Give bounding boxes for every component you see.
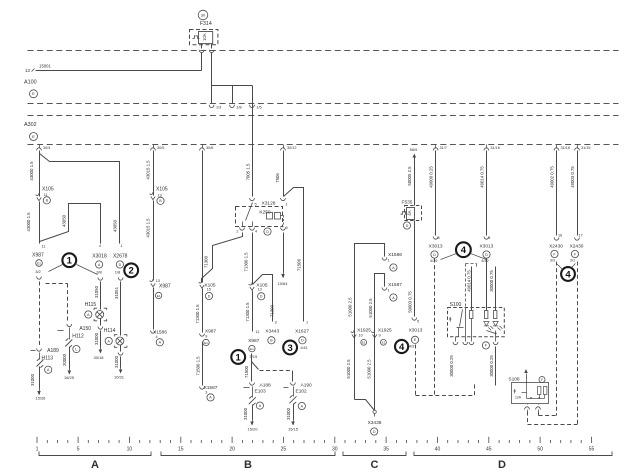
svg-text:4/39: 4/39 bbox=[430, 259, 437, 263]
svg-text:50005 2.5: 50005 2.5 bbox=[407, 166, 412, 186]
svg-text:E: E bbox=[32, 134, 35, 139]
svg-text:F314: F314 bbox=[200, 21, 212, 27]
svg-text:2: 2 bbox=[236, 230, 238, 234]
svg-text:X2430: X2430 bbox=[570, 243, 584, 249]
svg-text:4: 4 bbox=[399, 342, 405, 353]
svg-text:7506: 7506 bbox=[275, 173, 280, 183]
svg-text:31/15: 31/15 bbox=[581, 146, 591, 150]
svg-text:E1: E1 bbox=[250, 347, 254, 351]
svg-text:51000 2.5: 51000 2.5 bbox=[368, 298, 373, 318]
svg-text:71300: 71300 bbox=[270, 304, 275, 317]
svg-text:A188: A188 bbox=[260, 383, 272, 389]
svg-text:11: 11 bbox=[42, 245, 46, 249]
svg-text:50: 50 bbox=[537, 447, 543, 453]
svg-text:D: D bbox=[119, 263, 122, 267]
svg-text:1: 1 bbox=[388, 289, 390, 293]
svg-text:1: 1 bbox=[286, 202, 288, 206]
svg-text:X3438: X3438 bbox=[368, 420, 382, 426]
svg-text:4: 4 bbox=[99, 244, 101, 248]
svg-text:11: 11 bbox=[256, 330, 260, 334]
svg-text:71506: 71506 bbox=[297, 258, 302, 271]
svg-text:15001: 15001 bbox=[39, 63, 51, 68]
svg-text:13: 13 bbox=[156, 279, 160, 283]
svg-text:25: 25 bbox=[281, 447, 287, 453]
svg-text:30000 0.25: 30000 0.25 bbox=[449, 355, 454, 377]
svg-text:10: 10 bbox=[127, 447, 133, 453]
svg-text:X3443: X3443 bbox=[265, 328, 279, 334]
svg-text:1/3: 1/3 bbox=[216, 106, 221, 110]
svg-text:31000: 31000 bbox=[94, 332, 99, 345]
svg-text:49002 0.75: 49002 0.75 bbox=[550, 166, 555, 188]
svg-text:50003 0.75: 50003 0.75 bbox=[407, 291, 412, 313]
svg-text:C: C bbox=[371, 459, 379, 471]
svg-text:30000 0.75: 30000 0.75 bbox=[489, 270, 494, 292]
svg-text:71500: 71500 bbox=[244, 365, 249, 378]
svg-text:49003 0.75: 49003 0.75 bbox=[570, 166, 575, 188]
svg-text:51000 2.5: 51000 2.5 bbox=[348, 297, 353, 317]
svg-text:71300 1.5: 71300 1.5 bbox=[195, 304, 200, 324]
svg-text:1: 1 bbox=[36, 447, 39, 453]
svg-text:3/15: 3/15 bbox=[249, 354, 258, 359]
svg-text:4: 4 bbox=[156, 335, 158, 339]
svg-text:16: 16 bbox=[558, 234, 562, 238]
svg-text:E1: E1 bbox=[37, 261, 41, 265]
svg-text:3: 3 bbox=[275, 320, 277, 324]
svg-text:A302: A302 bbox=[24, 122, 37, 128]
svg-text:43015 1.5: 43015 1.5 bbox=[146, 218, 151, 238]
svg-text:3: 3 bbox=[205, 390, 207, 394]
svg-text:31000: 31000 bbox=[243, 407, 248, 420]
svg-text:X105: X105 bbox=[42, 186, 54, 192]
svg-text:43050: 43050 bbox=[62, 214, 67, 227]
svg-text:49014 0.75: 49014 0.75 bbox=[467, 270, 472, 292]
svg-text:31000: 31000 bbox=[30, 373, 35, 386]
svg-text:E102: E102 bbox=[296, 389, 308, 395]
svg-text:H115: H115 bbox=[85, 302, 97, 308]
svg-text:15/20: 15/20 bbox=[247, 427, 258, 432]
svg-text:E1: E1 bbox=[382, 341, 386, 345]
svg-text:3/1: 3/1 bbox=[570, 259, 575, 263]
svg-text:X105: X105 bbox=[156, 186, 168, 192]
svg-text:D: D bbox=[260, 295, 263, 299]
svg-text:15/26: 15/26 bbox=[35, 396, 46, 401]
svg-text:31/7: 31/7 bbox=[440, 146, 447, 150]
svg-text:D: D bbox=[433, 253, 436, 257]
svg-text:43000 1.5: 43000 1.5 bbox=[26, 212, 31, 232]
svg-text:43015 1.5: 43015 1.5 bbox=[146, 160, 151, 180]
svg-text:49014 0.75: 49014 0.75 bbox=[479, 166, 484, 188]
svg-text:1/8: 1/8 bbox=[236, 106, 241, 110]
svg-text:B: B bbox=[244, 459, 252, 471]
svg-text:A190: A190 bbox=[301, 383, 313, 389]
svg-text:E103: E103 bbox=[255, 389, 267, 395]
svg-text:X3128: X3128 bbox=[262, 200, 276, 206]
svg-text:A100: A100 bbox=[24, 80, 37, 86]
svg-text:9: 9 bbox=[379, 334, 381, 338]
svg-text:S100: S100 bbox=[450, 302, 462, 308]
svg-text:17: 17 bbox=[579, 234, 583, 238]
svg-text:30/6: 30/6 bbox=[206, 146, 213, 150]
svg-text:9: 9 bbox=[205, 334, 207, 338]
svg-text:10/64: 10/64 bbox=[277, 281, 288, 286]
svg-text:4: 4 bbox=[255, 230, 257, 234]
svg-text:3/3: 3/3 bbox=[550, 259, 555, 263]
svg-text:E1: E1 bbox=[157, 294, 161, 298]
svg-text:E1: E1 bbox=[362, 341, 366, 345]
svg-text:E: E bbox=[32, 91, 35, 96]
svg-text:3/2: 3/2 bbox=[35, 269, 41, 274]
svg-text:F535: F535 bbox=[402, 200, 413, 206]
svg-text:11: 11 bbox=[44, 193, 48, 197]
svg-text:F: F bbox=[541, 378, 543, 382]
svg-text:71300 1.5: 71300 1.5 bbox=[244, 252, 249, 272]
svg-text:5: 5 bbox=[255, 202, 257, 206]
svg-text:X1587: X1587 bbox=[388, 282, 402, 288]
svg-text:1/8: 1/8 bbox=[115, 270, 121, 275]
svg-text:X1925: X1925 bbox=[357, 327, 371, 333]
svg-text:35: 35 bbox=[383, 447, 389, 453]
svg-text:15: 15 bbox=[178, 447, 184, 453]
svg-text:31000: 31000 bbox=[286, 407, 291, 420]
svg-text:D: D bbox=[498, 459, 506, 471]
svg-text:1: 1 bbox=[306, 320, 308, 324]
svg-text:4/42: 4/42 bbox=[481, 259, 488, 263]
svg-text:40: 40 bbox=[435, 447, 441, 453]
svg-text:55: 55 bbox=[589, 447, 595, 453]
svg-text:31/16: 31/16 bbox=[490, 146, 500, 150]
svg-text:5: 5 bbox=[77, 447, 80, 453]
svg-text:D: D bbox=[485, 253, 488, 257]
svg-text:20000: 20000 bbox=[62, 353, 67, 366]
svg-text:X1925: X1925 bbox=[378, 327, 392, 333]
svg-text:4: 4 bbox=[565, 269, 571, 280]
svg-text:X987: X987 bbox=[32, 253, 44, 259]
svg-text:30000 0.25: 30000 0.25 bbox=[489, 355, 494, 377]
svg-text:15: 15 bbox=[207, 288, 211, 292]
svg-text:16/25: 16/25 bbox=[64, 375, 75, 380]
svg-text:13: 13 bbox=[25, 68, 30, 73]
svg-text:7005 1.5: 7005 1.5 bbox=[245, 163, 250, 180]
svg-text:X2678: X2678 bbox=[113, 254, 128, 260]
svg-text:43000 1.5: 43000 1.5 bbox=[29, 161, 34, 181]
svg-text:10A: 10A bbox=[202, 33, 207, 41]
svg-text:X3013: X3013 bbox=[409, 328, 423, 334]
svg-text:1/5: 1/5 bbox=[256, 106, 261, 110]
svg-text:A: A bbox=[91, 459, 99, 471]
svg-text:10: 10 bbox=[359, 334, 363, 338]
svg-text:30/5: 30/5 bbox=[157, 146, 164, 150]
svg-text:30: 30 bbox=[201, 14, 205, 18]
svg-text:X987: X987 bbox=[159, 283, 171, 289]
svg-text:31051: 31051 bbox=[114, 286, 119, 299]
svg-text:71300: 71300 bbox=[204, 255, 209, 268]
svg-text:X1627: X1627 bbox=[295, 328, 309, 334]
svg-text:H114: H114 bbox=[104, 328, 116, 334]
svg-text:31050: 31050 bbox=[94, 285, 99, 298]
svg-text:X2430: X2430 bbox=[549, 243, 563, 249]
svg-text:D: D bbox=[208, 294, 211, 298]
svg-text:X1586: X1586 bbox=[388, 252, 402, 258]
svg-text:9: 9 bbox=[286, 226, 288, 230]
svg-text:X3013: X3013 bbox=[429, 243, 443, 249]
svg-text:30/12: 30/12 bbox=[287, 146, 297, 150]
svg-text:56/9: 56/9 bbox=[410, 147, 419, 152]
svg-text:A189: A189 bbox=[47, 348, 59, 354]
svg-text:3: 3 bbox=[287, 343, 292, 354]
svg-text:L: L bbox=[75, 347, 77, 351]
svg-text:3/8: 3/8 bbox=[96, 270, 102, 275]
svg-text:10/31: 10/31 bbox=[114, 375, 125, 380]
svg-text:4: 4 bbox=[461, 245, 467, 256]
svg-text:30/18: 30/18 bbox=[93, 355, 104, 360]
svg-text:13: 13 bbox=[158, 193, 162, 197]
svg-text:H113: H113 bbox=[42, 356, 54, 362]
svg-text:X3018: X3018 bbox=[92, 254, 107, 260]
svg-text:A150: A150 bbox=[79, 326, 91, 332]
svg-text:5: 5 bbox=[417, 320, 419, 324]
svg-text:S108: S108 bbox=[508, 377, 520, 383]
svg-text:30/4: 30/4 bbox=[43, 146, 50, 150]
svg-text:1/43: 1/43 bbox=[300, 346, 307, 350]
svg-text:43050: 43050 bbox=[113, 219, 118, 232]
svg-text:1: 1 bbox=[67, 256, 73, 267]
svg-text:12A: 12A bbox=[515, 396, 522, 400]
svg-text:1: 1 bbox=[236, 352, 242, 363]
svg-text:71300 1.5: 71300 1.5 bbox=[245, 302, 250, 322]
svg-text:4A: 4A bbox=[407, 210, 412, 215]
svg-text:H112: H112 bbox=[72, 333, 84, 339]
svg-text:51000 2.5: 51000 2.5 bbox=[366, 359, 371, 379]
svg-text:D: D bbox=[373, 430, 376, 434]
svg-text:E1: E1 bbox=[204, 341, 208, 345]
svg-text:X3013: X3013 bbox=[479, 243, 493, 249]
svg-text:1: 1 bbox=[120, 244, 122, 248]
svg-text:1: 1 bbox=[388, 259, 390, 263]
svg-text:2: 2 bbox=[129, 266, 134, 277]
svg-text:D: D bbox=[266, 230, 269, 234]
svg-text:20: 20 bbox=[229, 447, 235, 453]
svg-text:D: D bbox=[301, 339, 304, 343]
svg-text:45: 45 bbox=[486, 447, 492, 453]
svg-text:13: 13 bbox=[258, 288, 262, 292]
svg-text:15/15: 15/15 bbox=[288, 427, 299, 432]
svg-text:49000 0.25: 49000 0.25 bbox=[429, 166, 434, 188]
svg-text:71500 1.5: 71500 1.5 bbox=[195, 356, 200, 376]
svg-text:31/16: 31/16 bbox=[561, 146, 571, 150]
svg-text:31000: 31000 bbox=[114, 355, 119, 368]
svg-text:51000 2.5: 51000 2.5 bbox=[346, 359, 351, 379]
svg-text:D: D bbox=[406, 224, 409, 228]
svg-text:X987: X987 bbox=[248, 338, 260, 344]
